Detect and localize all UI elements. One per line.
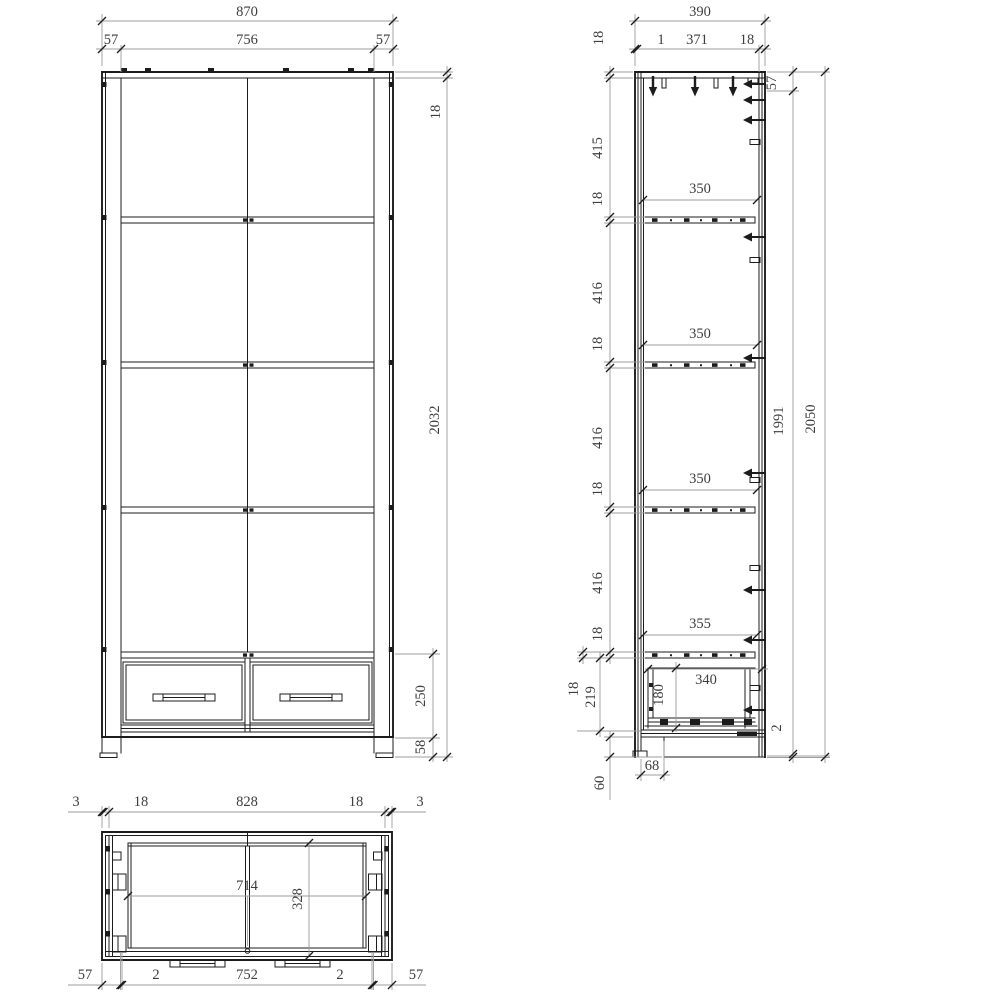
dim-side-bottom-shelf-thickness: 18	[566, 682, 582, 697]
front-drawer-handles	[153, 694, 342, 701]
dim-side-drawer-section: 219	[583, 686, 599, 708]
dim-front-opening-width: 756	[236, 32, 258, 48]
dim-side-chain-2: 18	[590, 192, 606, 207]
dim-side-bottom-gap: 2	[769, 724, 785, 731]
dim-top-inner-depth: 328	[290, 888, 306, 910]
front-view-dimensions: 870 57 756 57 18 2032 250 58	[96, 4, 453, 762]
side-view-dimensions: 390 1 371 18 18 415 18 416 18 416 18 416…	[566, 4, 830, 800]
dim-side-shelf-depth-2: 350	[689, 326, 711, 342]
furniture-technical-drawing: 870 57 756 57 18 2032 250 58 390 1 371 1…	[0, 0, 1000, 1000]
dim-side-interior-height: 1991	[771, 407, 787, 436]
front-dim-lines	[96, 14, 453, 762]
dim-side-chain-5: 416	[590, 427, 606, 449]
dim-side-plinth-recess: 68	[645, 758, 660, 774]
dim-top-opening-width: 714	[236, 878, 259, 894]
dim-front-drawer-height: 250	[413, 685, 429, 707]
dim-side-top-offset: 57	[764, 76, 780, 91]
dim-side-chain-1: 415	[590, 137, 606, 159]
dim-side-chain-8: 18	[590, 627, 606, 642]
dim-top-bottom-2: 752	[236, 967, 258, 983]
dim-top-edge-2: 828	[236, 794, 258, 810]
top-view-structure	[102, 832, 392, 967]
dim-side-chain-7: 416	[590, 572, 606, 594]
front-legs	[100, 737, 393, 758]
dim-top-edge-1: 18	[134, 794, 149, 810]
dim-side-chain-6: 18	[590, 482, 606, 497]
top-handles	[170, 960, 330, 967]
side-view-structure	[633, 72, 766, 757]
dim-side-plinth-height: 60	[592, 776, 608, 791]
front-drawers	[123, 662, 372, 723]
dim-side-back-gap: 1	[657, 32, 664, 48]
dim-front-right-side: 57	[376, 32, 391, 48]
dim-front-top-thickness: 18	[428, 105, 444, 120]
dim-front-carcass-height: 2032	[427, 406, 443, 435]
dim-side-chain-4: 18	[590, 337, 606, 352]
dim-side-wall-thickness: 18	[740, 32, 755, 48]
dim-side-drawer-inner-height: 180	[651, 684, 667, 706]
dim-side-inner-depth: 371	[686, 32, 708, 48]
top-carcass-lines	[106, 832, 389, 957]
side-view: 390 1 371 18 18 415 18 416 18 416 18 416…	[566, 4, 830, 800]
dim-top-edge-0: 3	[72, 794, 79, 810]
front-dim-ticks	[98, 17, 451, 761]
technical-drawing-canvas: 870 57 756 57 18 2032 250 58 390 1 371 1…	[0, 0, 1000, 1000]
dim-side-shelf-depth-1: 350	[689, 181, 711, 197]
side-fastener-arrows	[649, 76, 766, 736]
front-view: 870 57 756 57 18 2032 250 58	[96, 4, 453, 762]
dim-side-total-depth: 390	[689, 4, 711, 20]
top-view: 3 18 828 18 3 714 328 57 2 752 2 57	[68, 794, 426, 990]
dim-side-total-height: 2050	[803, 405, 819, 434]
dim-top-bottom-4: 57	[409, 967, 424, 983]
dim-side-chain-0: 18	[591, 31, 607, 46]
side-dim-ticks	[579, 17, 829, 779]
dim-side-shelf-depth-4: 355	[689, 616, 711, 632]
side-dowel-pins	[662, 78, 758, 88]
front-view-structure	[100, 68, 393, 758]
dim-top-bottom-3: 2	[336, 967, 343, 983]
dim-top-bottom-0: 57	[78, 967, 93, 983]
side-shelf-hatch	[652, 218, 746, 657]
dim-side-drawer-depth: 340	[695, 672, 717, 688]
dim-top-bottom-1: 2	[152, 967, 159, 983]
dim-front-plinth-height: 58	[413, 740, 429, 755]
dim-front-total-width: 870	[236, 4, 258, 20]
dim-top-edge-3: 18	[349, 794, 364, 810]
dim-side-chain-3: 416	[590, 282, 606, 304]
dim-side-shelf-depth-3: 350	[689, 471, 711, 487]
dim-front-left-side: 57	[104, 32, 119, 48]
front-carcass-lines	[102, 72, 393, 737]
dim-top-edge-4: 3	[416, 794, 423, 810]
